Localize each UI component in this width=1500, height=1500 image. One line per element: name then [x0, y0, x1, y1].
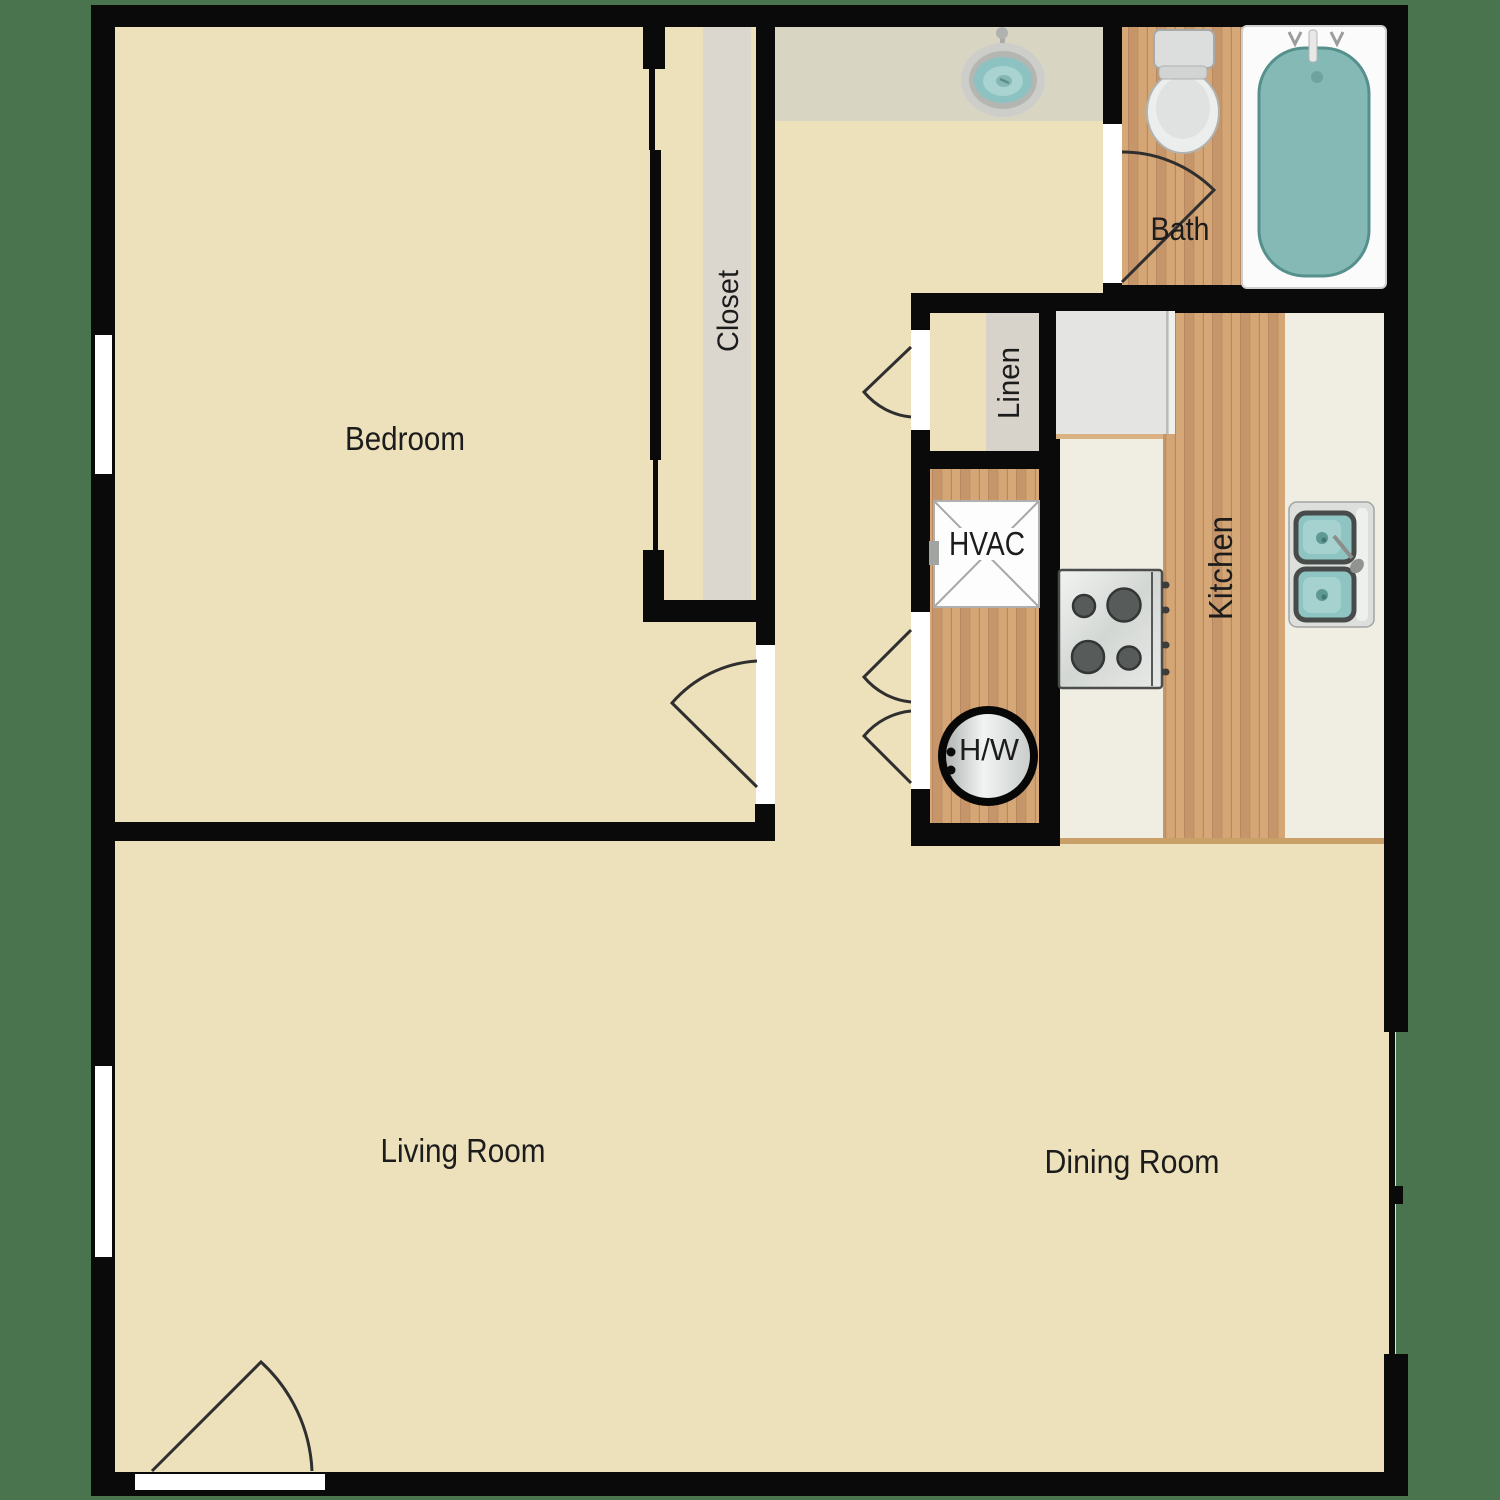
svg-text:Closet: Closet [712, 269, 745, 352]
svg-text:HVAC: HVAC [949, 525, 1025, 562]
svg-text:Bath: Bath [1151, 211, 1210, 247]
svg-text:Bedroom: Bedroom [345, 420, 465, 457]
svg-text:Kitchen: Kitchen [1202, 516, 1239, 620]
svg-text:Linen: Linen [991, 347, 1026, 419]
svg-text:Dining Room: Dining Room [1045, 1143, 1220, 1180]
svg-text:Living Room: Living Room [381, 1132, 546, 1169]
svg-text:H/W: H/W [959, 732, 1020, 767]
